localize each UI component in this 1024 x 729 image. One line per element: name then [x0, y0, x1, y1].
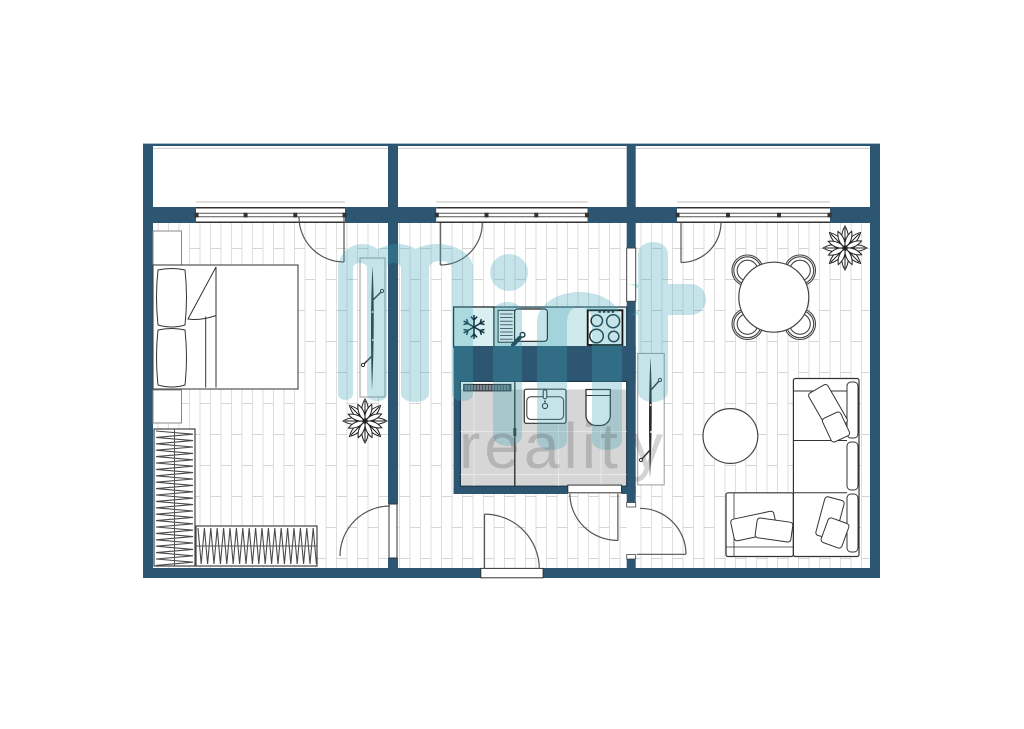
svg-text:realit: realit	[459, 410, 622, 482]
svg-text:y: y	[631, 410, 663, 482]
